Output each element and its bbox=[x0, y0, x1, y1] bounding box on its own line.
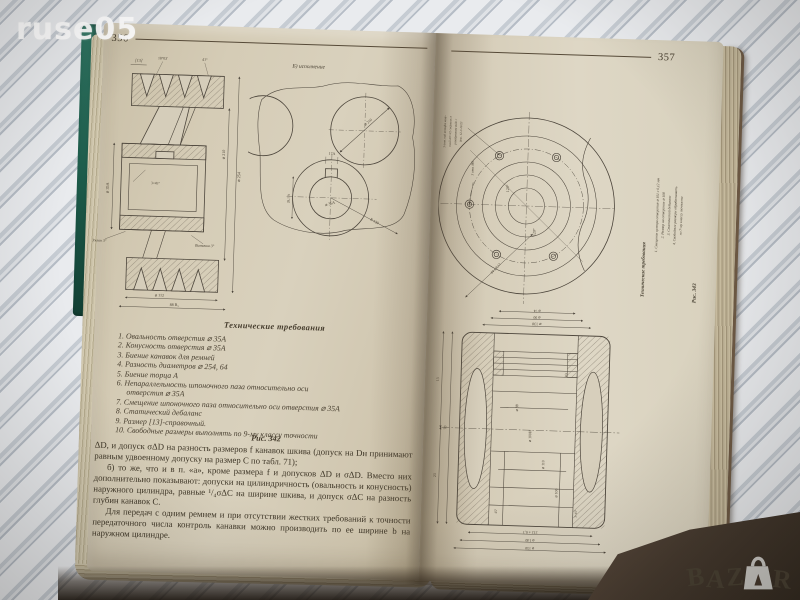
detail-label-d210: ⌀ 210 bbox=[364, 118, 373, 127]
cylinder-section-drawing: ⌀ 130 ⌀ 90 ⌀ 74 ⌀ 88 ⌀ 100Н ⌀ 110 R3 45°… bbox=[423, 305, 636, 559]
bazar-letter-r: R bbox=[771, 564, 792, 595]
bazar-letters: B A Z R bbox=[686, 558, 792, 595]
cylinder-bore-steps bbox=[488, 391, 576, 528]
flange-note1-line4: дет. 12-3-10/23 bbox=[459, 121, 464, 142]
bazar-letter-a: A bbox=[705, 564, 726, 594]
cyl-dim-d110: ⌀ 110 bbox=[541, 460, 545, 469]
pulley-label-slope: Уклон 3° bbox=[92, 238, 107, 242]
watermark-ruse05: ruse05 bbox=[16, 12, 138, 47]
cyl-dim-d74: ⌀ 74 bbox=[533, 309, 540, 313]
cyl-dim-212: 212 ± 0,1 bbox=[523, 529, 538, 534]
shopping-bag-icon bbox=[744, 558, 773, 589]
tech-item-rotated: 2. Размер на отверстие ⌀ 108 bbox=[660, 192, 665, 238]
bazar-letter-z: Z bbox=[725, 562, 744, 592]
rotated-tech-requirements: Технические требования 1. Смещение центр… bbox=[630, 99, 710, 341]
pulley-label-groove-note: Выточка 3° bbox=[195, 244, 215, 249]
pulley-section-drawing: [13] 18°03' 41° ⌀ 35А ⌀ 210 ⌀ 254 3×45° … bbox=[89, 50, 247, 319]
cyl-dim-70: 70 bbox=[442, 425, 447, 429]
detail-label-r130: R 130 bbox=[369, 217, 379, 225]
book-photo: { "photo": { "watermark_top_left": "ruse… bbox=[0, 0, 800, 600]
flange-angle-2: 120° bbox=[531, 228, 536, 236]
cyl-dim-d88: ⌀ 88 bbox=[515, 404, 519, 411]
tech-item-rotated: 4. Свободные размеры обрабатывать bbox=[672, 186, 678, 245]
pulley-label-13: [13] bbox=[135, 58, 143, 63]
pulley-label-d254: ⌀ 254 bbox=[236, 171, 241, 182]
cyl-dim-chamfer: 3×45° bbox=[574, 509, 578, 518]
tech-requirements-list-left: 1. Овальность отверстия ⌀ 35А 2. Конусно… bbox=[115, 331, 346, 442]
cyl-dim-23: 23 bbox=[433, 473, 437, 477]
cyl-dim-d100: ⌀ 100Н bbox=[528, 430, 532, 442]
pulley-label-d210: ⌀ 210 bbox=[221, 150, 226, 160]
tech-item-rotated: 3. Статический дебаланс bbox=[666, 195, 672, 235]
cyl-dim-d90: ⌀ 90 bbox=[533, 315, 540, 319]
watermark-bazar: B A Z R bbox=[686, 549, 792, 595]
detail-view-caption: Б) исполнение bbox=[291, 63, 325, 71]
flange-note1-line3: разобранном виде с bbox=[453, 118, 458, 145]
pulley-label-d112: ⌀ 112 bbox=[155, 292, 164, 297]
open-book: 356 357 bbox=[67, 22, 746, 599]
hub-end-view-drawing: Б) исполнение ⌀ 210 17А ⌀ 35А R 130 28,1… bbox=[245, 57, 426, 257]
cyl-dim-d140: ⌀ 140 bbox=[525, 538, 534, 542]
pulley-geometry bbox=[103, 60, 240, 310]
pulley-label-angle1: 18°03' bbox=[158, 56, 168, 60]
flange-view-drawing: 3 отв. под штифт кону- сный ⌀3×22 сверли… bbox=[435, 81, 622, 322]
cyl-dim-d130: ⌀ 130 bbox=[532, 322, 542, 327]
detail-label-bore: ⌀ 35А bbox=[324, 200, 335, 208]
detail-label-keyway: 17А bbox=[329, 152, 336, 156]
pulley-label-chamfer: 3×45° bbox=[151, 181, 161, 185]
figure-caption-343: Рис. 343 bbox=[691, 283, 698, 303]
flange-note1-line1: 3 отв. под штифт кону- bbox=[442, 115, 447, 148]
pulley-label-bore: ⌀ 35А bbox=[105, 182, 110, 193]
body-paragraphs: ΔD, и допуск σΔD на разность размеров f … bbox=[92, 440, 413, 549]
cyl-dim-d106: ⌀ 106 bbox=[554, 488, 558, 497]
cyl-dim-r3: R3 bbox=[564, 373, 568, 377]
flange-angle-1: 120° bbox=[505, 184, 510, 192]
flange-note1-line2: сный ⌀3×22 сверлить в bbox=[447, 115, 453, 147]
hub-view-geometry bbox=[245, 79, 417, 244]
bazar-letter-b: B bbox=[686, 561, 706, 592]
cyl-dim-13: 13 bbox=[436, 377, 440, 381]
book-cast-shadow bbox=[58, 566, 658, 600]
detail-label-281: 28,1 А bbox=[286, 193, 291, 203]
cyl-dim-45: 45° bbox=[494, 508, 498, 514]
pulley-label-88: 88 В₃ bbox=[170, 302, 180, 307]
header-rule-right bbox=[451, 51, 651, 58]
tech-item-rotated: по 7-му классу точности bbox=[679, 196, 684, 235]
cyl-dim-d150: ⌀ 150 bbox=[525, 546, 534, 550]
tech-requirements-heading-right: Технические требования bbox=[641, 242, 648, 298]
pulley-label-angle2: 41° bbox=[202, 58, 208, 62]
page-number-right: 357 bbox=[658, 52, 676, 64]
flange-note2: 3 отв. М6 bbox=[470, 161, 474, 176]
